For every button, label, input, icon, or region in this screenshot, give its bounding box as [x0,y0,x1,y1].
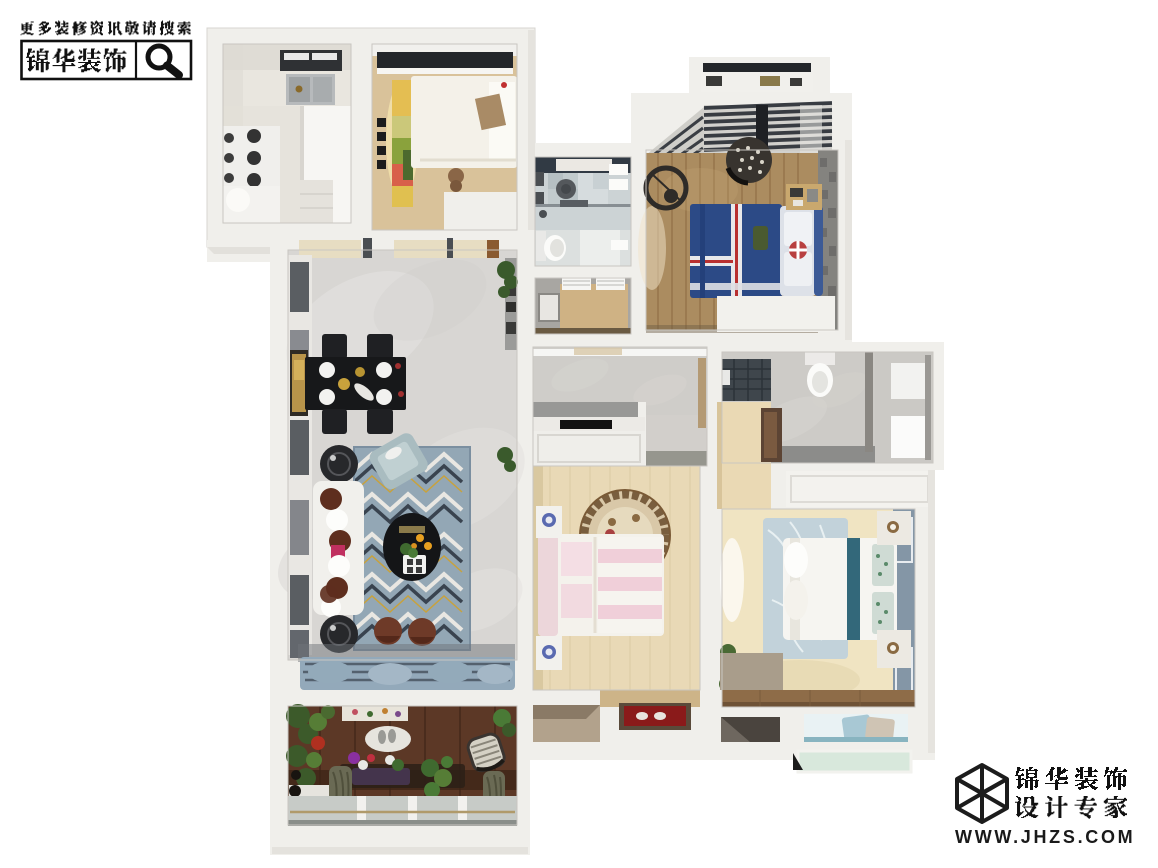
svg-text:WWW.JHZS.COM: WWW.JHZS.COM [955,827,1135,847]
